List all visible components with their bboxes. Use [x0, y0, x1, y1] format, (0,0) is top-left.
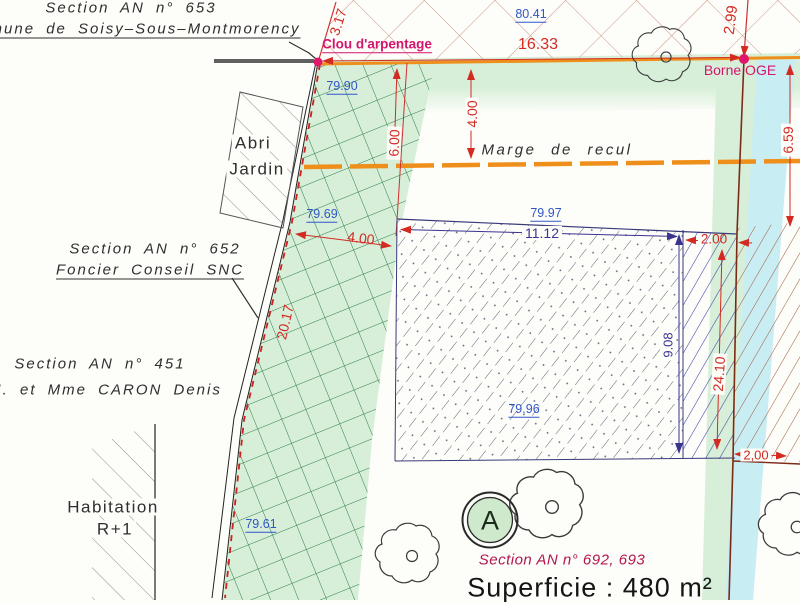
- tree-symbol: [758, 493, 800, 556]
- owner-652-label: Foncier Conseil SNC: [56, 263, 244, 280]
- spot-level-79-96: 79.96: [508, 403, 539, 418]
- habitation-level-label: R+1: [94, 521, 136, 538]
- clou-arpentage-label: Clou d'arpentage: [322, 37, 432, 53]
- clou-arpentage-point: [314, 58, 323, 67]
- marge-de-recul-label: Marge de recul: [481, 143, 632, 158]
- abri-label: Abri: [232, 135, 274, 152]
- dim-2-00-bottom: 2,00: [740, 449, 771, 462]
- commune-label: mune de Soisy–Sous–Montmorency: [0, 22, 300, 39]
- spot-level-79-69: 79.69: [306, 208, 337, 223]
- dim-24-10: 24.10: [711, 353, 728, 395]
- dim-6-00: 6.00: [386, 126, 401, 160]
- tree-symbol: [375, 523, 439, 583]
- lot-a-letter: A: [481, 508, 499, 535]
- borne-oge-label: Borne OGE: [704, 63, 776, 77]
- spot-level-80-41: 80.41: [515, 8, 546, 23]
- dim-6-59: 6.59: [781, 123, 795, 156]
- commune-leader-line: [289, 42, 316, 59]
- section-653-label: Section AN n° 653: [45, 1, 216, 16]
- section-451-label: Section AN n° 451: [14, 357, 185, 372]
- section-652-label: Section AN n° 652: [69, 242, 240, 257]
- dim-9-08: 9.08: [662, 329, 675, 360]
- parcel-a-hatch: [395, 219, 683, 461]
- brown-strip-region: [733, 222, 800, 462]
- spot-level-79-97: 79.97: [530, 207, 561, 222]
- section-692-693-label: Section AN n° 692, 693: [479, 553, 646, 568]
- tree-symbol: [510, 469, 584, 537]
- habitation-label: Habitation: [64, 499, 162, 516]
- spot-level-79-61: 79.61: [245, 518, 276, 533]
- jardin-label: Jardin: [226, 161, 287, 178]
- dim-16-33: 16.33: [518, 37, 558, 53]
- dim-2-00-top: 2.00: [701, 232, 727, 246]
- cadastral-plan: Section AN n° 653 mune de Soisy–Sous–Mon…: [0, 0, 800, 600]
- dim-11-12: 11.12: [522, 226, 562, 240]
- spot-level-79-90: 79.90: [326, 80, 357, 95]
- dim-2-99: 2.99: [722, 5, 740, 36]
- dim-4-00-band: 4.00: [347, 229, 376, 246]
- blue-strip-region: [683, 232, 737, 459]
- dim-4-00-recul: 4.00: [465, 97, 479, 130]
- superficie-label: Superficie : 480 m²: [467, 575, 713, 602]
- owner-451-label: M. et Mme CARON Denis: [0, 383, 222, 398]
